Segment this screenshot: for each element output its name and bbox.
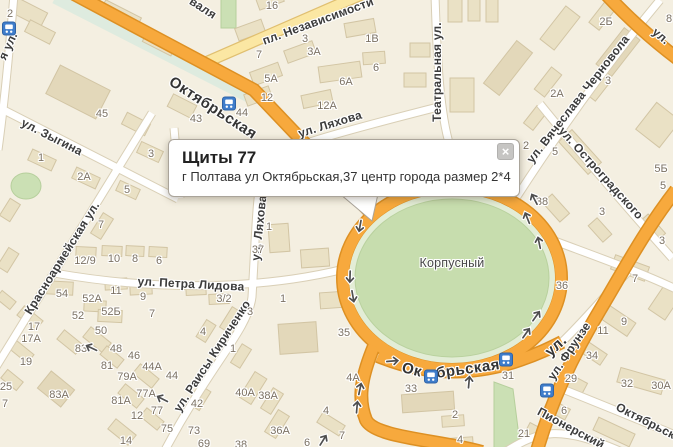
building (209, 293, 229, 304)
building (450, 78, 474, 112)
building (448, 0, 462, 22)
building (126, 246, 144, 257)
green-patch (11, 173, 41, 199)
building (486, 0, 498, 22)
map-viewport[interactable]: Октябрьскаяпл. Независимостиул. ЛяховаТе… (0, 0, 673, 447)
building (401, 391, 454, 413)
korpusny-park (355, 199, 549, 357)
close-icon: × (502, 144, 510, 159)
building (98, 309, 123, 322)
building (410, 43, 430, 57)
building (102, 245, 122, 256)
building (363, 51, 386, 65)
building (404, 73, 426, 87)
building (442, 415, 465, 428)
balloon-close-button[interactable]: × (497, 143, 514, 160)
map-balloon: Щиты 77 г Полтава ул Октябрьская,37 цент… (168, 139, 520, 197)
balloon-title: Щиты 77 (182, 147, 493, 168)
building (468, 0, 480, 21)
balloon-address: г Полтава ул Октябрьская,37 центр города… (182, 168, 493, 186)
green-patch (221, 0, 236, 28)
building (278, 322, 318, 355)
building (300, 248, 329, 268)
balloon-tail (336, 194, 380, 224)
building (149, 247, 167, 258)
building (76, 246, 96, 257)
building (268, 223, 290, 252)
